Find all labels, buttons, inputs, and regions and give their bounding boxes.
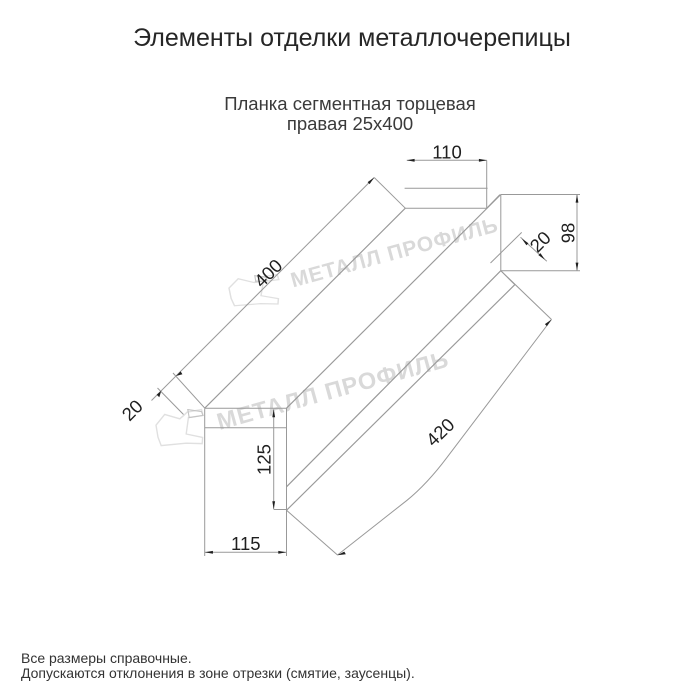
svg-text:Элементы отделки металлочерепи: Элементы отделки металлочерепицы [133, 24, 571, 52]
svg-text:400: 400 [250, 255, 287, 292]
svg-text:420: 420 [422, 414, 459, 451]
svg-text:110: 110 [432, 142, 462, 163]
svg-text:Допускаются отклонения в зоне: Допускаются отклонения в зоне отрезки (с… [21, 665, 415, 681]
svg-text:125: 125 [254, 444, 275, 475]
svg-text:Все размеры справочные.: Все размеры справочные. [21, 650, 192, 666]
svg-text:20: 20 [525, 227, 554, 256]
svg-text:правая 25х400: правая 25х400 [287, 113, 413, 134]
svg-text:98: 98 [558, 223, 579, 244]
svg-text:115: 115 [231, 533, 261, 554]
svg-text:МЕТАЛЛ ПРОФИЛЬ: МЕТАЛЛ ПРОФИЛЬ [214, 346, 452, 435]
svg-text:20: 20 [117, 395, 146, 424]
svg-text:Планка сегментная торцевая: Планка сегментная торцевая [224, 93, 476, 114]
